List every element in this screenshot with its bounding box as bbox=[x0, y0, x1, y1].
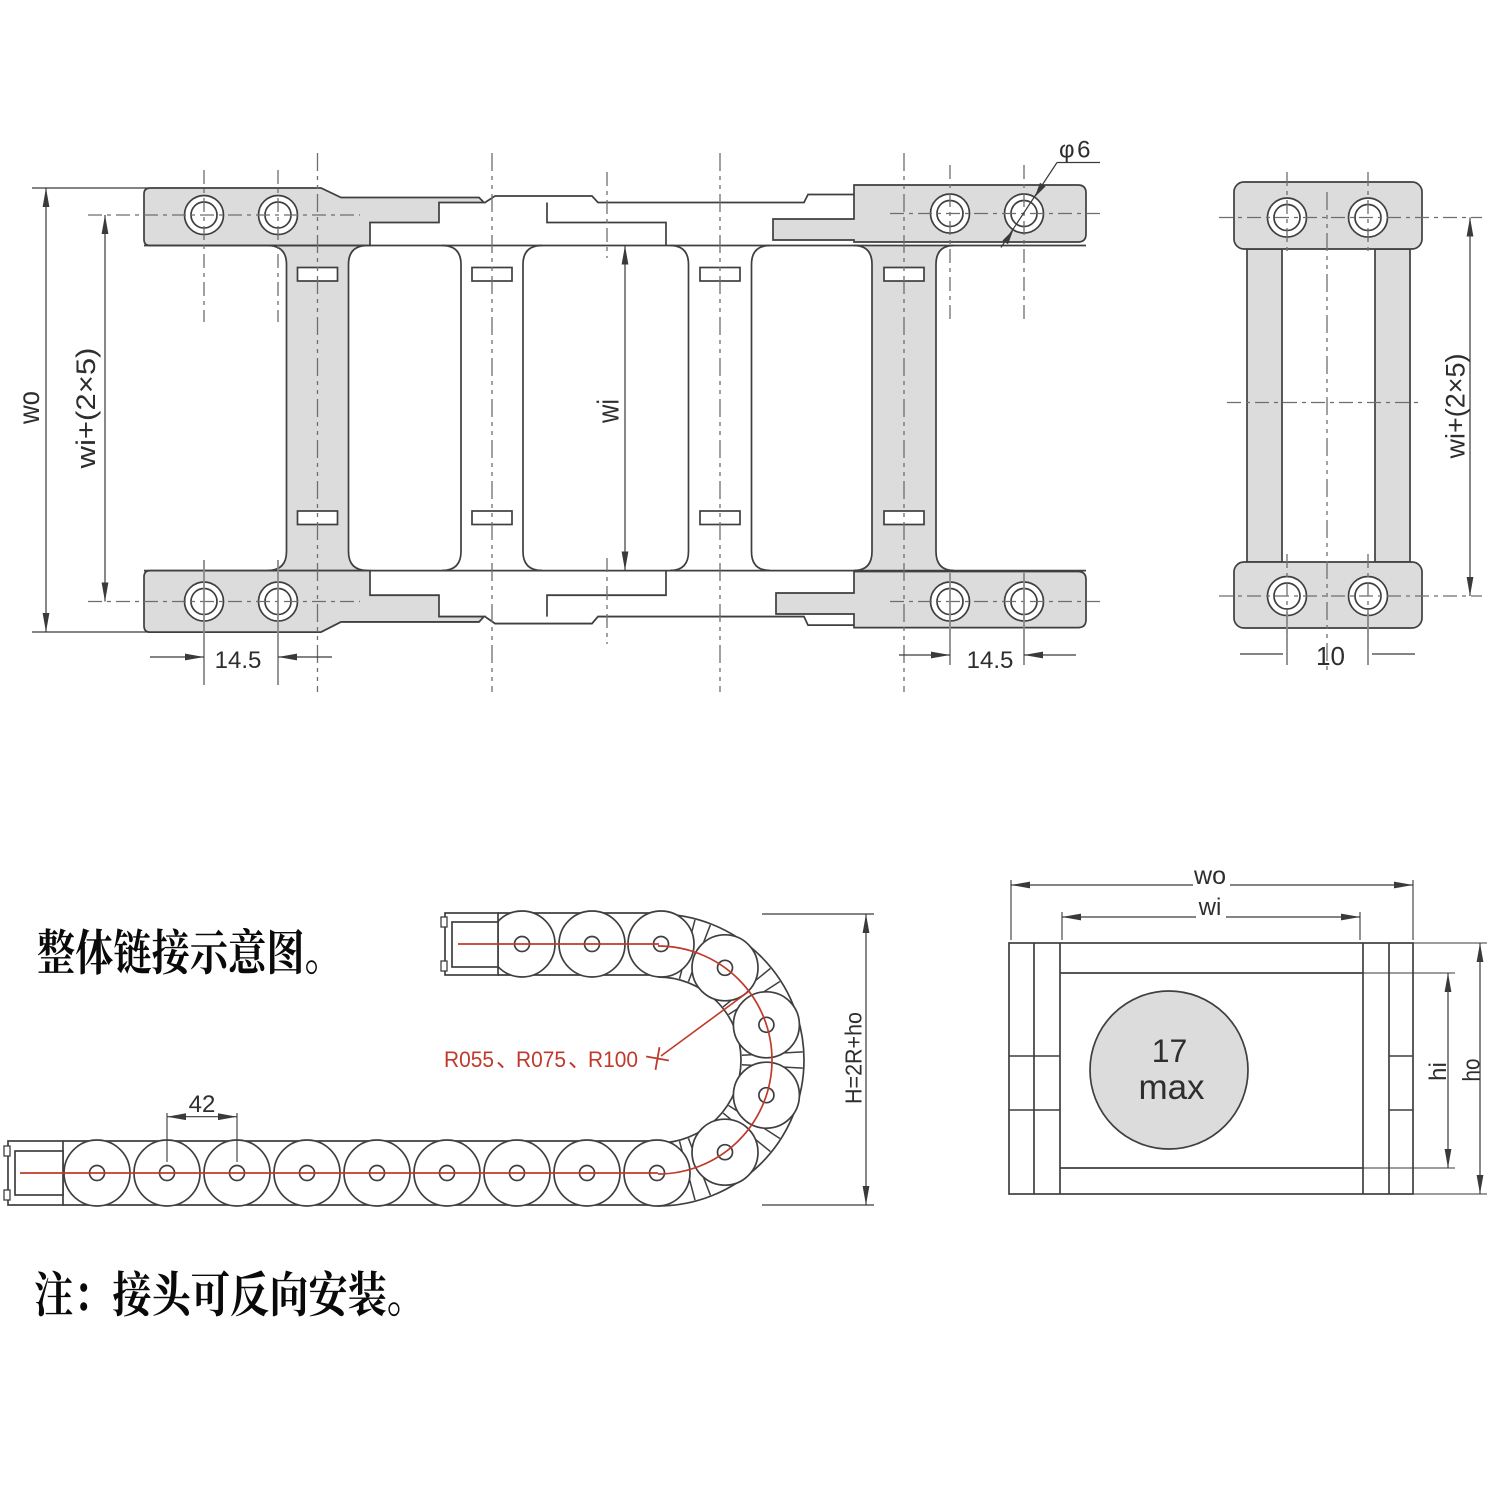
svg-text:R055: R055 bbox=[444, 1047, 494, 1072]
svg-text:R100: R100 bbox=[588, 1047, 638, 1072]
svg-text:wo: wo bbox=[13, 391, 46, 425]
svg-text:max: max bbox=[1138, 1068, 1205, 1107]
svg-text:wi+(2×5): wi+(2×5) bbox=[1441, 354, 1471, 460]
svg-text:wi+(2×5): wi+(2×5) bbox=[71, 348, 101, 470]
svg-text:hi: hi bbox=[1425, 1062, 1452, 1081]
svg-text:H=2R+ho: H=2R+ho bbox=[841, 1012, 867, 1104]
svg-text:17: 17 bbox=[1152, 1033, 1188, 1069]
svg-text:10: 10 bbox=[1316, 641, 1345, 671]
svg-text:R075: R075 bbox=[516, 1047, 566, 1072]
svg-text:ho: ho bbox=[1459, 1059, 1486, 1082]
svg-text:wo: wo bbox=[1193, 862, 1226, 890]
svg-text:φ6: φ6 bbox=[1059, 137, 1093, 164]
svg-text:14.5: 14.5 bbox=[215, 647, 262, 674]
svg-text:wi: wi bbox=[1198, 894, 1222, 921]
svg-text:42: 42 bbox=[189, 1091, 216, 1118]
svg-text:14.5: 14.5 bbox=[967, 647, 1014, 674]
svg-text:wi: wi bbox=[591, 399, 626, 424]
